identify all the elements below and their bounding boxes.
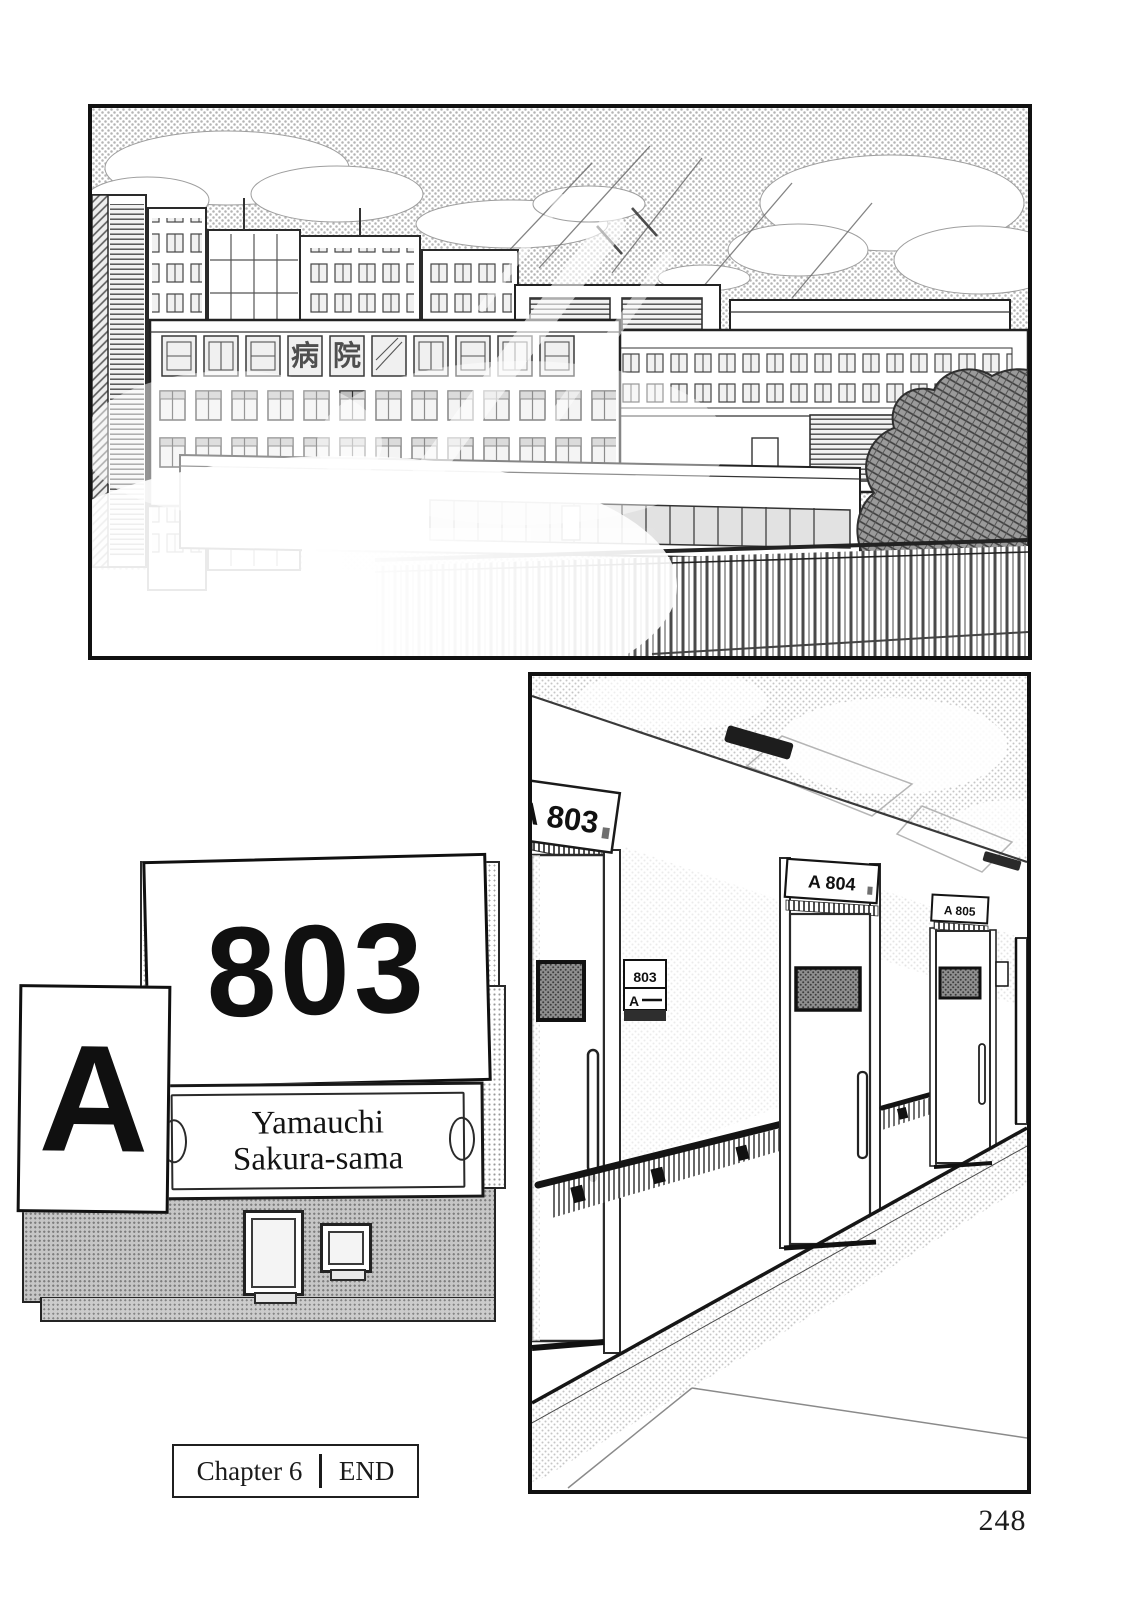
door-3-sign: A 805 bbox=[931, 895, 988, 924]
door-2: A 804 bbox=[780, 858, 880, 1248]
door-2-window bbox=[796, 968, 860, 1010]
hospital-sign-char-2: 院 bbox=[333, 339, 361, 372]
door-4-sliver bbox=[1016, 938, 1027, 1124]
indicator-foot bbox=[254, 1292, 297, 1304]
panel-hospital-hallway: A 803 803 A bbox=[528, 672, 1031, 1494]
door-3-sign-label: A 805 bbox=[944, 903, 977, 919]
door-1-window bbox=[538, 962, 584, 1020]
chapter-label: Chapter 6 bbox=[197, 1456, 303, 1487]
door-2-handle bbox=[858, 1072, 867, 1158]
chapter-end-box: Chapter 6 END bbox=[172, 1444, 419, 1498]
ward-letter-plate: A bbox=[17, 984, 172, 1214]
indicator-window bbox=[251, 1218, 296, 1288]
door-1-handle bbox=[588, 1050, 598, 1172]
door-indicator-light bbox=[243, 1210, 304, 1296]
patient-name-line1: Yamauchi bbox=[252, 1104, 385, 1141]
hallway-drawing: A 803 803 A bbox=[532, 676, 1027, 1490]
button-foot bbox=[330, 1269, 366, 1281]
door-call-button bbox=[320, 1223, 372, 1273]
door-1-side-sign: 803 A bbox=[624, 960, 666, 1021]
door-2-sign-label: A 804 bbox=[808, 871, 857, 894]
patient-name-line2: Sakura-sama bbox=[233, 1140, 404, 1178]
door-3-handle bbox=[979, 1044, 985, 1104]
side-sign-letter: A bbox=[629, 993, 639, 1009]
end-label: END bbox=[339, 1456, 395, 1487]
ward-letter: A bbox=[38, 1022, 150, 1175]
button-face bbox=[328, 1231, 364, 1265]
side-sign-number: 803 bbox=[633, 969, 657, 985]
page-number: 248 bbox=[950, 1504, 1055, 1538]
door-3: A 805 bbox=[930, 895, 1008, 1166]
manga-page: 病 院 bbox=[0, 0, 1123, 1600]
room-number-plate: 803 bbox=[142, 853, 491, 1089]
panel-hospital-exterior: 病 院 bbox=[88, 104, 1032, 660]
patient-name-card: Yamauchi Sakura-sama bbox=[171, 1092, 466, 1191]
patient-name-slot: Yamauchi Sakura-sama bbox=[152, 1082, 485, 1201]
hospital-sign-char-1: 病 bbox=[291, 339, 319, 372]
door-1-sign: A 803 bbox=[532, 778, 620, 853]
door-2-sign: A 804 bbox=[785, 859, 879, 903]
room-number: 803 bbox=[205, 904, 429, 1037]
room-nameplate-illustration: 803 Yamauchi Sakura-sama A bbox=[10, 845, 515, 1330]
door-3-window bbox=[940, 968, 980, 998]
door-3-side-sign bbox=[996, 962, 1008, 986]
cityscape-drawing: 病 院 bbox=[92, 108, 1028, 656]
chapter-divider bbox=[319, 1454, 322, 1488]
